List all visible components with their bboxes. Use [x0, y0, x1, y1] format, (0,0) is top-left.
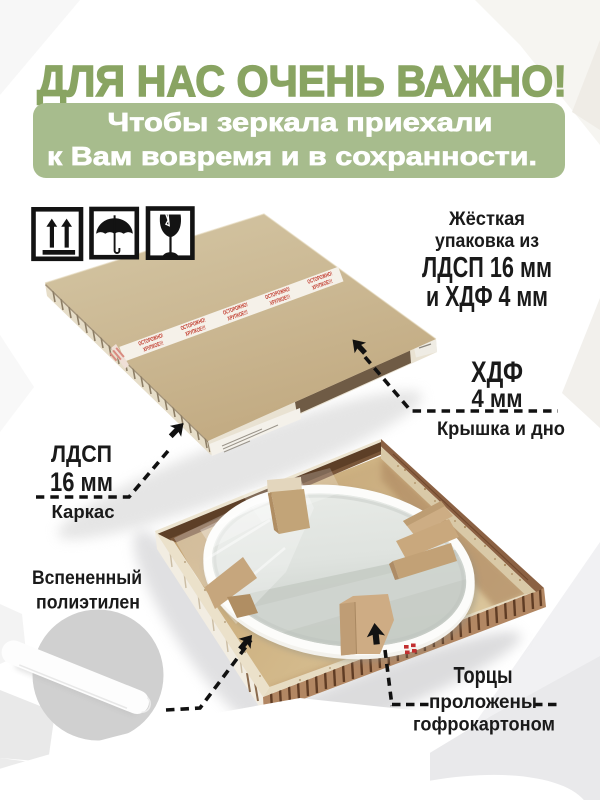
svg-text:Жёсткая: Жёсткая: [448, 208, 525, 230]
svg-text:16 мм: 16 мм: [50, 467, 113, 497]
svg-text:Крышка и дно: Крышка и дно: [437, 418, 565, 440]
svg-text:ЛДСП 16 мм: ЛДСП 16 мм: [422, 252, 552, 284]
svg-text:ДЛЯ НАС ОЧЕНЬ ВАЖНО!: ДЛЯ НАС ОЧЕНЬ ВАЖНО!: [37, 57, 567, 106]
svg-text:Чтобы зеркала приехали: Чтобы зеркала приехали: [108, 107, 493, 137]
svg-text:к Вам вовремя и в сохранности.: к Вам вовремя и в сохранности.: [47, 141, 537, 171]
svg-text:Вспененный: Вспененный: [32, 567, 142, 589]
svg-text:проложены: проложены: [429, 691, 537, 713]
svg-text:полиэтилен: полиэтилен: [36, 592, 140, 614]
svg-text:4 мм: 4 мм: [472, 385, 523, 413]
svg-text:ЛДСП: ЛДСП: [51, 441, 112, 468]
svg-text:гофрокартоном: гофрокартоном: [413, 714, 555, 736]
svg-text:упаковка из: упаковка из: [435, 230, 539, 252]
svg-text:Каркас: Каркас: [52, 501, 115, 522]
svg-text:Торцы: Торцы: [454, 662, 513, 688]
svg-text:и ХДФ 4 мм: и ХДФ 4 мм: [426, 281, 548, 313]
